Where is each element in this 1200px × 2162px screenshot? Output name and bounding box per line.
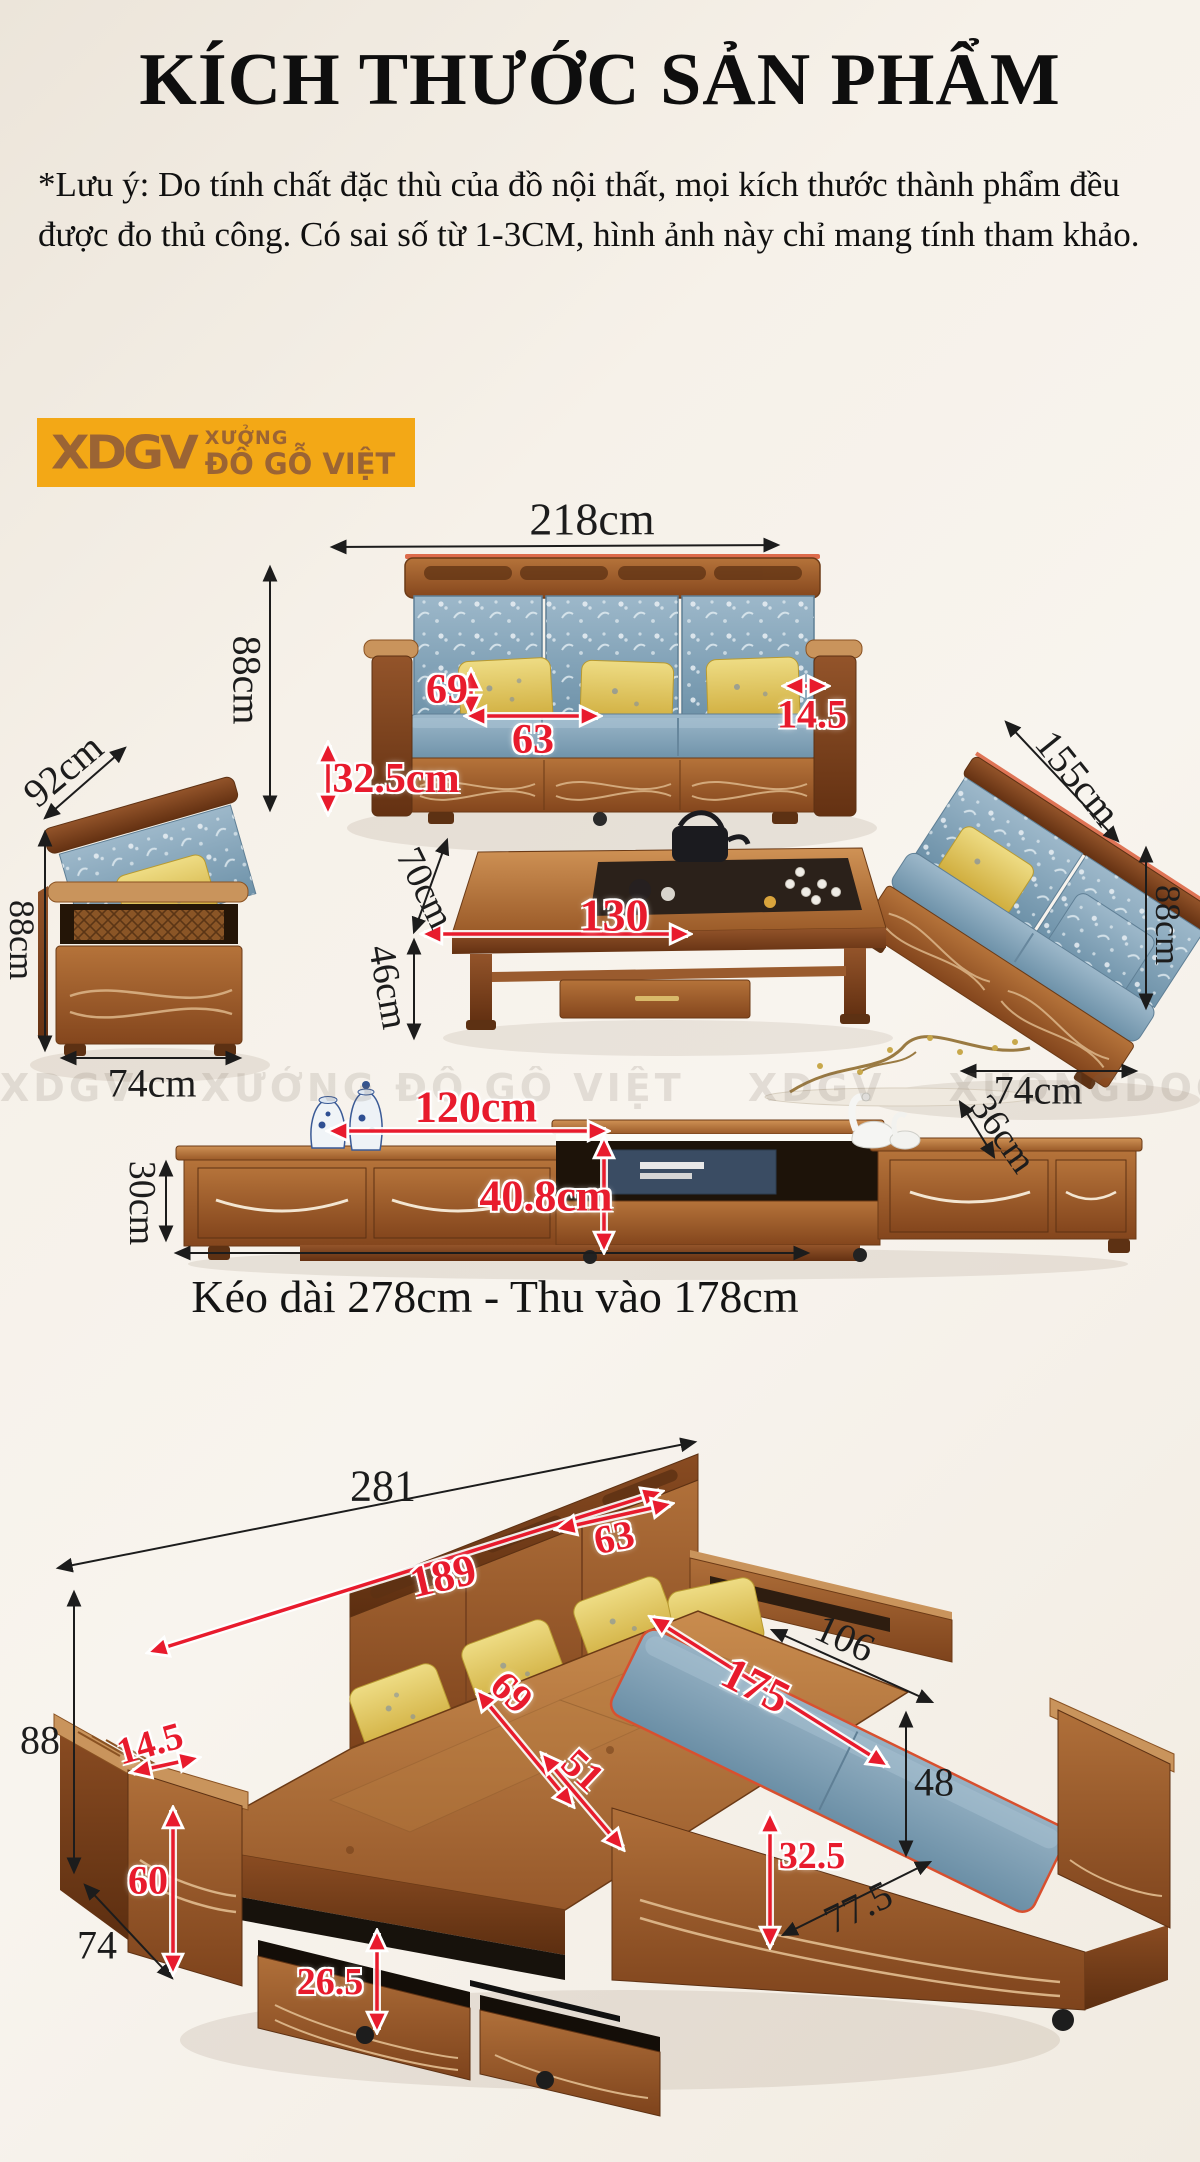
page-title: KÍCH THƯỚC SẢN PHẨM bbox=[0, 38, 1200, 123]
dim-table-length: 130 bbox=[580, 889, 649, 942]
watermark-brand-2: XDGV bbox=[748, 1066, 885, 1110]
dim-armchair-height: 88cm bbox=[1, 900, 43, 980]
infographic-canvas: KÍCH THƯỚC SẢN PHẨM *Lưu ý: Do tính chất… bbox=[0, 0, 1200, 2162]
dim-tv-mid-width: 120cm bbox=[415, 1082, 537, 1133]
dim-corner-total-width: 281 bbox=[350, 1461, 416, 1512]
dim-sofa-height: 88cm bbox=[224, 636, 271, 725]
dim-corner-drawer-height: 26.5 bbox=[297, 1960, 364, 2004]
dim-corner-height: 88 bbox=[20, 1717, 60, 1764]
dim-armrest-width: 14.5 bbox=[777, 691, 847, 738]
brand-logo: XDGV XƯỞNG ĐỒ GỖ VIỆT bbox=[37, 418, 415, 487]
dim-seat-back-height: 69 bbox=[426, 666, 468, 714]
dim-loveseat-depth: 74cm bbox=[994, 1067, 1083, 1114]
brand-logo-line1: XƯỞNG bbox=[205, 429, 395, 448]
dim-corner-armrest-height: 60 bbox=[128, 1857, 168, 1904]
dim-tv-height: 30cm bbox=[120, 1161, 164, 1245]
chaise-armrest bbox=[1050, 1698, 1174, 1928]
armchair bbox=[38, 775, 268, 1056]
brand-logo-line2: ĐỒ GỖ VIỆT bbox=[205, 450, 395, 479]
extension-note: Kéo dài 278cm - Thu vào 178cm bbox=[165, 1270, 825, 1323]
brand-logo-abbr: XDGV bbox=[51, 426, 195, 479]
dim-sofa-width: 218cm bbox=[529, 493, 654, 546]
dim-sofa-base-height: 32.5cm bbox=[332, 755, 459, 803]
dim-armchair-depth: 74cm bbox=[108, 1060, 197, 1107]
dim-seat-width: 63 bbox=[512, 716, 554, 764]
dim-tv-mid-height: 40.8cm bbox=[479, 1171, 612, 1222]
disclaimer-note: *Lưu ý: Do tính chất đặc thù của đồ nội … bbox=[38, 160, 1168, 259]
dim-chaise-height: 48 bbox=[914, 1759, 954, 1806]
dim-corner-base-height: 32.5 bbox=[779, 1834, 846, 1878]
dim-corner-depth: 74 bbox=[77, 1922, 117, 1969]
dim-loveseat-height: 88cm bbox=[1147, 885, 1189, 965]
